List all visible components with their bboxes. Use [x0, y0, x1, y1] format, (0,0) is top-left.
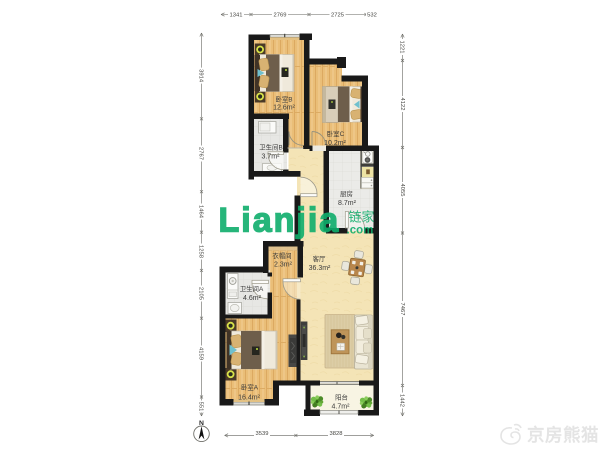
svg-text:1442: 1442	[398, 394, 404, 407]
svg-text:链家: 链家	[349, 210, 375, 225]
svg-text:12.6m²: 12.6m²	[273, 105, 295, 112]
svg-text:.com: .com	[347, 225, 374, 237]
svg-text:532: 532	[367, 13, 377, 19]
svg-text:4122: 4122	[399, 98, 405, 111]
svg-text:3914: 3914	[197, 69, 203, 83]
svg-text:3539: 3539	[256, 431, 269, 437]
svg-text:2.3m²: 2.3m²	[274, 262, 293, 269]
svg-text:1221: 1221	[398, 41, 404, 54]
svg-text:4.6m²: 4.6m²	[243, 295, 262, 302]
svg-text:2725: 2725	[331, 13, 344, 19]
svg-text:1258: 1258	[197, 245, 203, 258]
svg-text:4159: 4159	[197, 347, 203, 360]
svg-text:1464: 1464	[197, 205, 203, 219]
svg-text:京房熊猫: 京房熊猫	[527, 425, 599, 445]
svg-text:卧室C: 卧室C	[327, 129, 345, 138]
svg-text:4055: 4055	[399, 184, 405, 197]
svg-text:卫生间B: 卫生间B	[259, 143, 282, 152]
svg-text:10.2m²: 10.2m²	[324, 140, 346, 147]
svg-text:3.7m²: 3.7m²	[262, 154, 281, 161]
svg-text:厨房: 厨房	[340, 189, 353, 198]
svg-text:阳台: 阳台	[335, 393, 348, 402]
svg-text:卧室A: 卧室A	[241, 383, 259, 392]
svg-text:卧室B: 卧室B	[275, 95, 292, 104]
svg-text:1341: 1341	[230, 13, 243, 19]
svg-text:衣帽间: 衣帽间	[272, 251, 291, 260]
svg-text:8.7m²: 8.7m²	[338, 200, 357, 207]
svg-text:2105: 2105	[197, 287, 203, 300]
svg-text:16.4m²: 16.4m²	[238, 395, 260, 402]
svg-text:2767: 2767	[197, 147, 203, 160]
svg-text:551: 551	[197, 402, 203, 412]
svg-text:2769: 2769	[274, 13, 287, 19]
svg-text:7467: 7467	[399, 303, 405, 316]
svg-text:36.3m²: 36.3m²	[309, 265, 331, 272]
svg-text:4.7m²: 4.7m²	[332, 404, 351, 411]
svg-text:卫生间A: 卫生间A	[240, 284, 264, 293]
svg-text:客厅: 客厅	[313, 254, 326, 263]
svg-text:Lianjia: Lianjia	[219, 202, 341, 240]
svg-text:3828: 3828	[330, 431, 343, 437]
